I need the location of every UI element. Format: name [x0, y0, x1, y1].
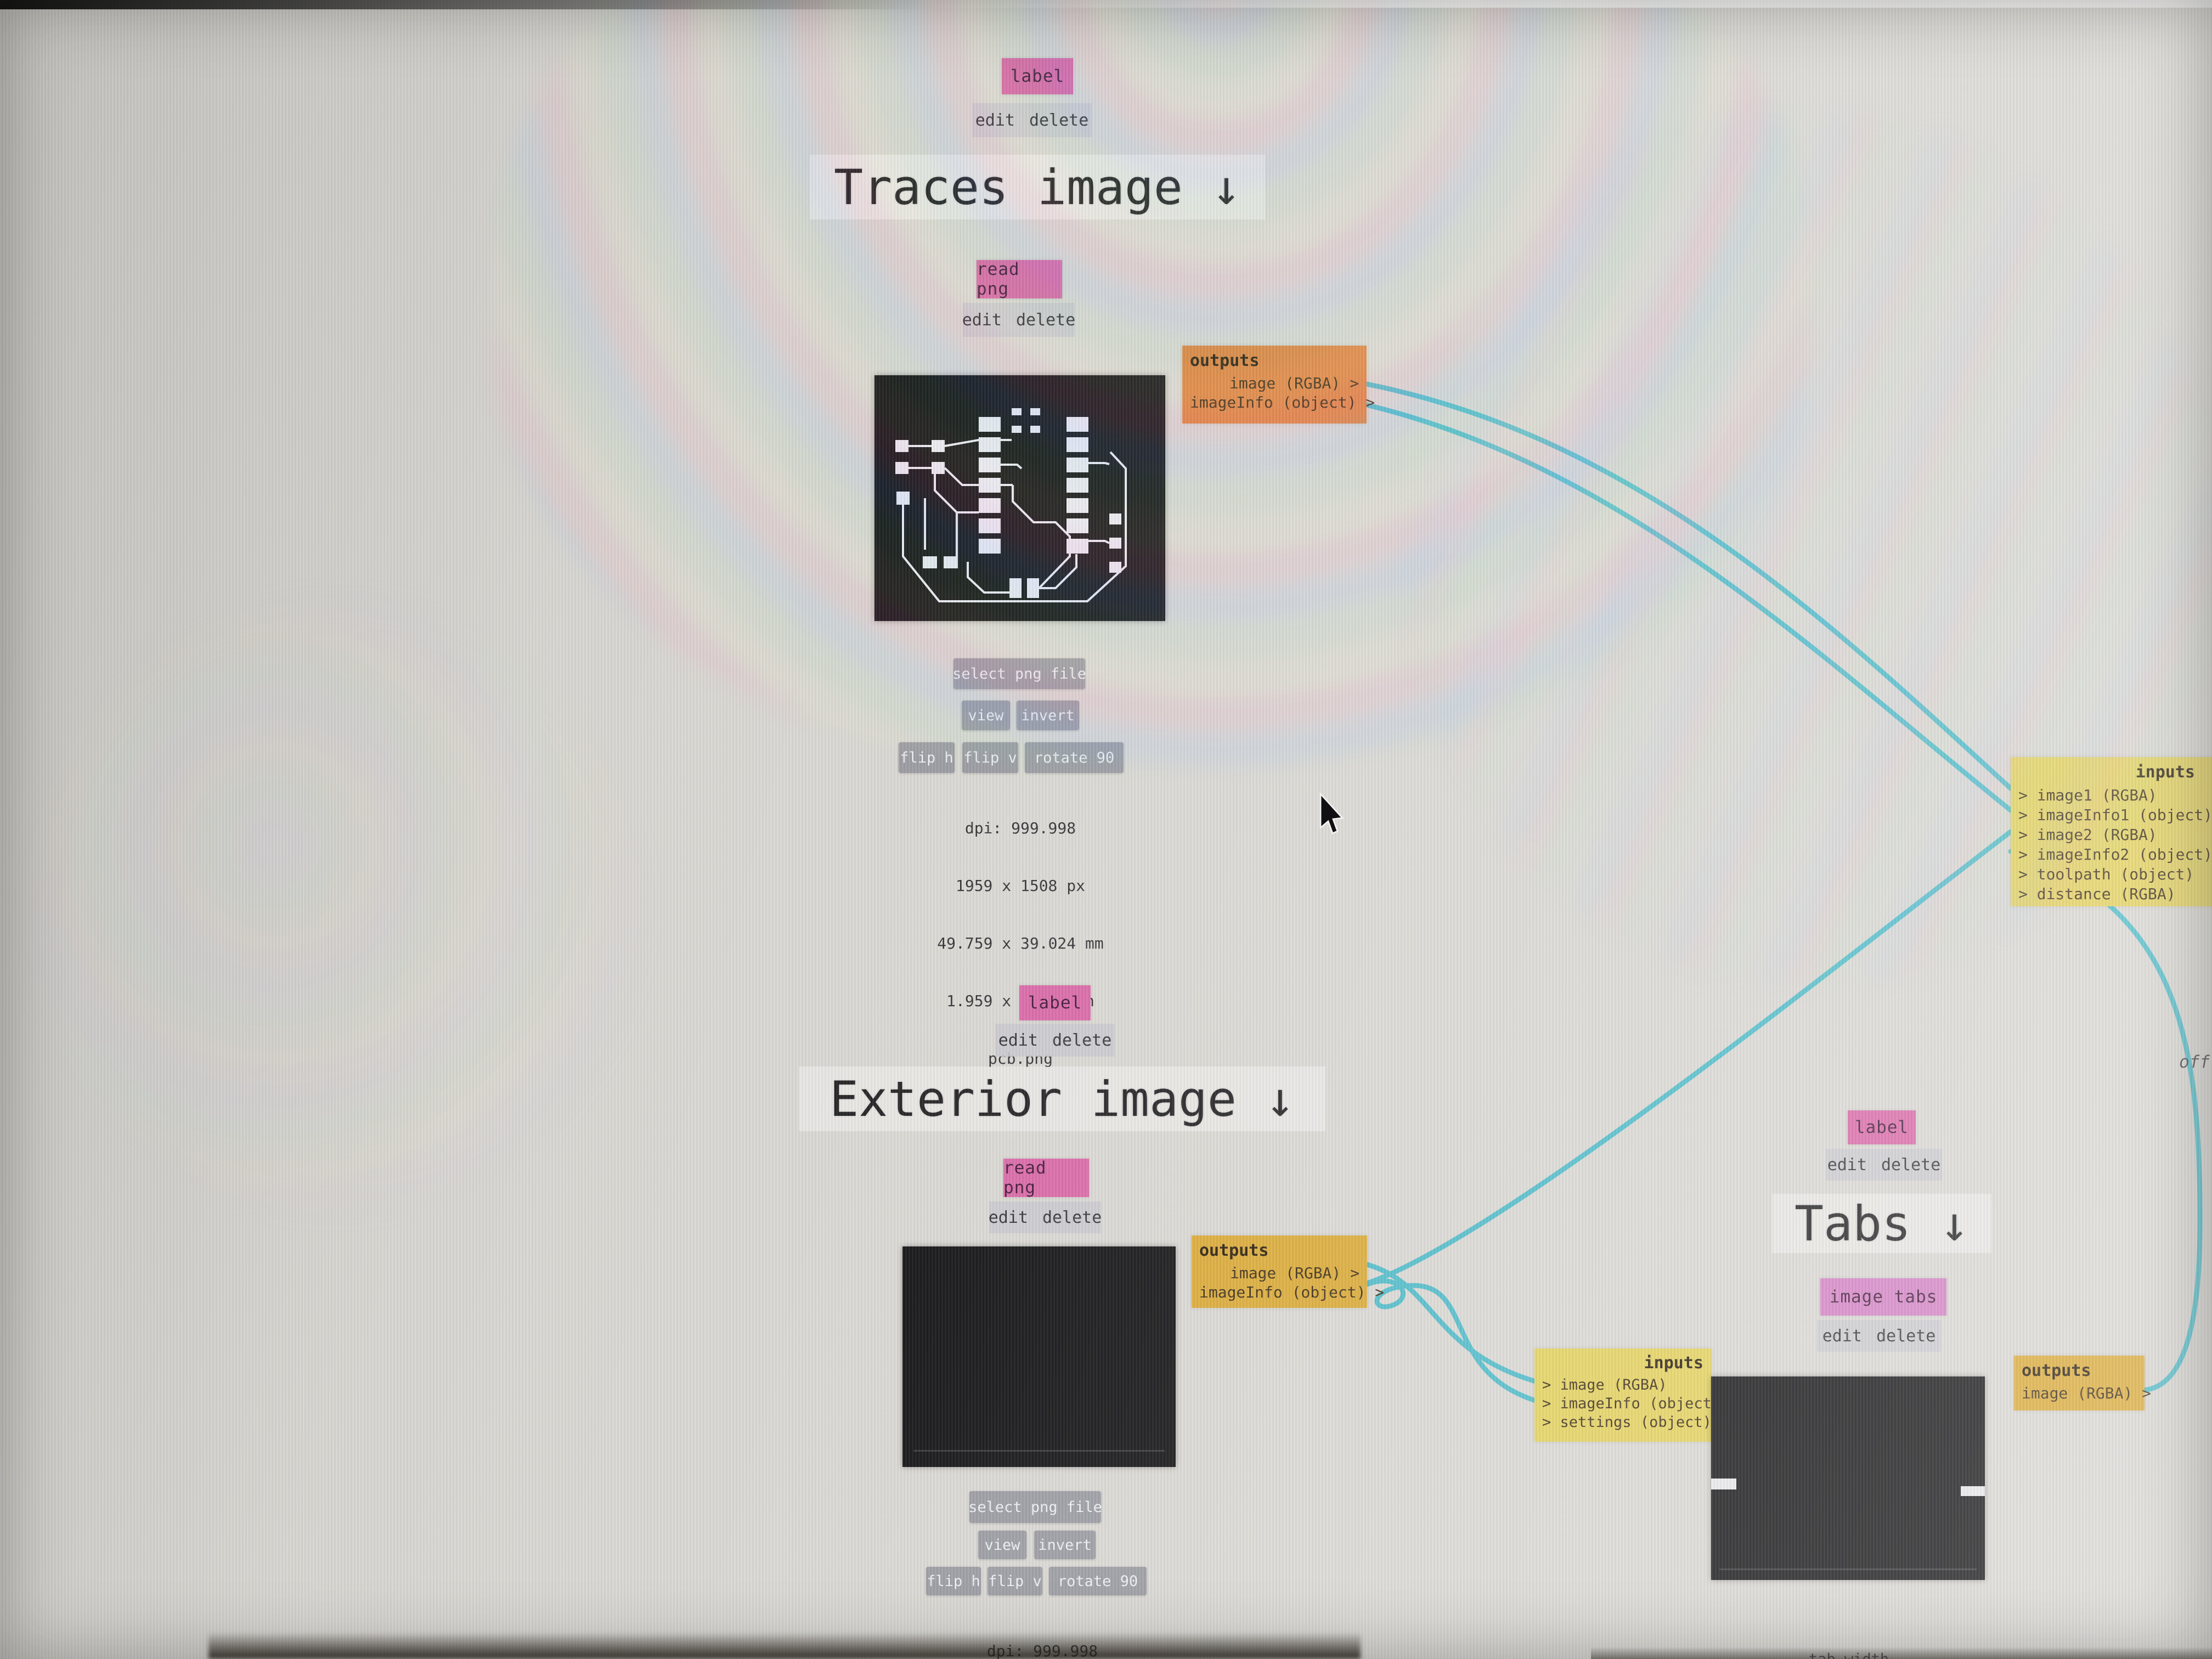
tabs-label-edit-button[interactable]: edit — [1827, 1155, 1867, 1175]
exterior-outline-line — [913, 1450, 1165, 1452]
tabs-outputs-panel: outputs image (RGBA) > — [2014, 1356, 2145, 1410]
mouse-cursor — [1319, 793, 1351, 840]
traces-info-mm: 49.759 x 39.024 mm — [900, 934, 1141, 953]
exterior-invert-button[interactable]: invert — [1034, 1531, 1096, 1559]
right-input-port-image1[interactable]: > image1 (RGBA) — [2018, 786, 2212, 805]
image-tabs-node[interactable]: image tabs — [1820, 1278, 1946, 1316]
traces-flip-v-button[interactable]: flip v — [962, 742, 1018, 773]
exterior-read-png-node[interactable]: read png — [1003, 1159, 1089, 1197]
traces-label-editbar: edit delete — [972, 103, 1092, 137]
traces-invert-button[interactable]: invert — [1017, 701, 1079, 730]
traces-output-port-image[interactable]: image (RGBA) > — [1190, 374, 1359, 393]
tabs-outline-line — [1719, 1568, 1977, 1570]
traces-outputs-panel: outputs image (RGBA) > imageInfo (object… — [1182, 346, 1367, 424]
exterior-label-delete-button[interactable]: delete — [1052, 1031, 1111, 1050]
traces-file-info: dpi: 999.998 1959 x 1508 px 49.759 x 39.… — [900, 780, 1141, 1107]
exterior-label-edit-button[interactable]: edit — [998, 1031, 1038, 1050]
tabs-outputs-header: outputs — [2022, 1361, 2137, 1380]
exterior-preview-image — [902, 1246, 1176, 1467]
traces-info-dpi: dpi: 999.998 — [900, 819, 1141, 838]
traces-label-edit-button[interactable]: edit — [975, 111, 1015, 130]
exterior-rotate-90-button[interactable]: rotate 90 — [1049, 1567, 1147, 1595]
pcb-traces-graphic — [874, 375, 1165, 621]
traces-label-node[interactable]: label — [1002, 58, 1073, 94]
traces-label-node-text: label — [1011, 66, 1064, 86]
traces-flip-h-button[interactable]: flip h — [899, 742, 955, 773]
tabs-params: tab width mm: 0.9 in: 0.035433 tab lengt… — [1679, 1605, 2019, 1659]
wire-tabs-image-to-image2 — [2011, 851, 2200, 1390]
tabs-inputs-panel: inputs > image (RGBA) > imageInfo (objec… — [1534, 1348, 1711, 1442]
traces-title: Traces image ↓ — [810, 155, 1265, 219]
right-inputs-panel: inputs > image1 (RGBA) > imageInfo1 (obj… — [2011, 757, 2212, 906]
traces-readpng-edit-button[interactable]: edit — [962, 311, 1002, 330]
right-input-port-imageinfo1[interactable]: > imageInfo1 (object) — [2018, 805, 2212, 825]
tab-notch-right — [1961, 1486, 1985, 1496]
traces-pcb-preview-image — [874, 375, 1165, 621]
right-input-port-imageinfo2[interactable]: > imageInfo2 (object) — [2018, 845, 2212, 865]
traces-readpng-editbar: edit delete — [963, 303, 1075, 337]
exterior-label-node-text: label — [1028, 993, 1082, 1013]
exterior-readpng-editbar: edit delete — [989, 1201, 1101, 1233]
tabs-output-port-image[interactable]: image (RGBA) > — [2022, 1384, 2137, 1403]
tabs-inputs-header: inputs — [1542, 1354, 1703, 1373]
traces-read-png-node[interactable]: read png — [977, 260, 1062, 298]
exterior-readpng-delete-button[interactable]: delete — [1042, 1208, 1102, 1227]
exterior-output-port-image[interactable]: image (RGBA) > — [1199, 1263, 1359, 1283]
right-input-port-distance[interactable]: > distance (RGBA) — [2018, 884, 2212, 904]
image-tabs-delete-button[interactable]: delete — [1876, 1327, 1936, 1346]
exterior-outputs-header: outputs — [1199, 1241, 1359, 1260]
clipped-module-text: off — [2179, 1052, 2210, 1072]
tabs-input-port-image[interactable]: > image (RGBA) — [1542, 1376, 1703, 1395]
exterior-view-button[interactable]: view — [978, 1531, 1026, 1559]
traces-output-port-imageinfo[interactable]: imageInfo (object) > — [1190, 393, 1359, 412]
tabs-label-editbar: edit delete — [1826, 1149, 1942, 1181]
traces-readpng-delete-button[interactable]: delete — [1016, 311, 1075, 330]
tab-notch-left — [1711, 1479, 1736, 1489]
right-input-port-image2[interactable]: > image2 (RGBA) — [2018, 825, 2212, 845]
exterior-select-png-file-button[interactable]: select png file — [969, 1491, 1101, 1523]
tabs-label-node[interactable]: label — [1848, 1110, 1916, 1144]
tabs-label-node-text: label — [1855, 1118, 1909, 1137]
right-inputs-header: inputs — [2018, 763, 2212, 782]
tabs-input-port-settings[interactable]: > settings (object) — [1542, 1413, 1703, 1432]
exterior-output-port-imageinfo[interactable]: imageInfo (object) > — [1199, 1283, 1359, 1302]
exterior-title: Exterior image ↓ — [799, 1066, 1325, 1131]
traces-select-png-file-button[interactable]: select png file — [953, 658, 1085, 689]
tab-width-label: tab width — [1679, 1649, 2019, 1659]
image-tabs-editbar: edit delete — [1817, 1320, 1941, 1352]
wire-exterior-imageinfo-to-tabs-imageinfo — [1367, 1281, 1536, 1401]
traces-label-delete-button[interactable]: delete — [1029, 111, 1088, 130]
exterior-flip-h-button[interactable]: flip h — [926, 1567, 981, 1595]
exterior-label-node[interactable]: label — [1019, 985, 1091, 1020]
wire-traces-imageinfo-to-imageinfo1 — [1367, 405, 2011, 810]
traces-outputs-header: outputs — [1190, 351, 1359, 370]
mods-canvas[interactable]: label edit delete Traces image ↓ read pn… — [0, 0, 2212, 1659]
exterior-info-dpi: dpi: 999.998 — [922, 1641, 1163, 1659]
exterior-flip-v-button[interactable]: flip v — [988, 1567, 1042, 1595]
right-input-port-toolpath[interactable]: > toolpath (object) — [2018, 865, 2212, 884]
traces-rotate-90-button[interactable]: rotate 90 — [1025, 742, 1124, 773]
traces-view-button[interactable]: view — [962, 701, 1010, 730]
tabs-input-port-imageinfo[interactable]: > imageInfo (object) — [1542, 1395, 1703, 1413]
exterior-readpng-edit-button[interactable]: edit — [989, 1208, 1028, 1227]
exterior-label-editbar: edit delete — [995, 1024, 1115, 1057]
traces-info-px: 1959 x 1508 px — [900, 876, 1141, 895]
tabs-label-delete-button[interactable]: delete — [1881, 1155, 1940, 1175]
image-tabs-edit-button[interactable]: edit — [1822, 1327, 1862, 1346]
exterior-read-png-node-text: read png — [1003, 1158, 1089, 1198]
exterior-file-info: dpi: 999.998 1959 x 1508 px 49.759 x 39.… — [922, 1603, 1163, 1659]
tabs-title: Tabs ↓ — [1772, 1194, 1991, 1253]
image-tabs-node-text: image tabs — [1830, 1287, 1938, 1307]
exterior-outputs-panel: outputs image (RGBA) > imageInfo (object… — [1192, 1235, 1367, 1308]
tabs-preview-image — [1711, 1376, 1985, 1580]
traces-read-png-node-text: read png — [977, 259, 1062, 299]
